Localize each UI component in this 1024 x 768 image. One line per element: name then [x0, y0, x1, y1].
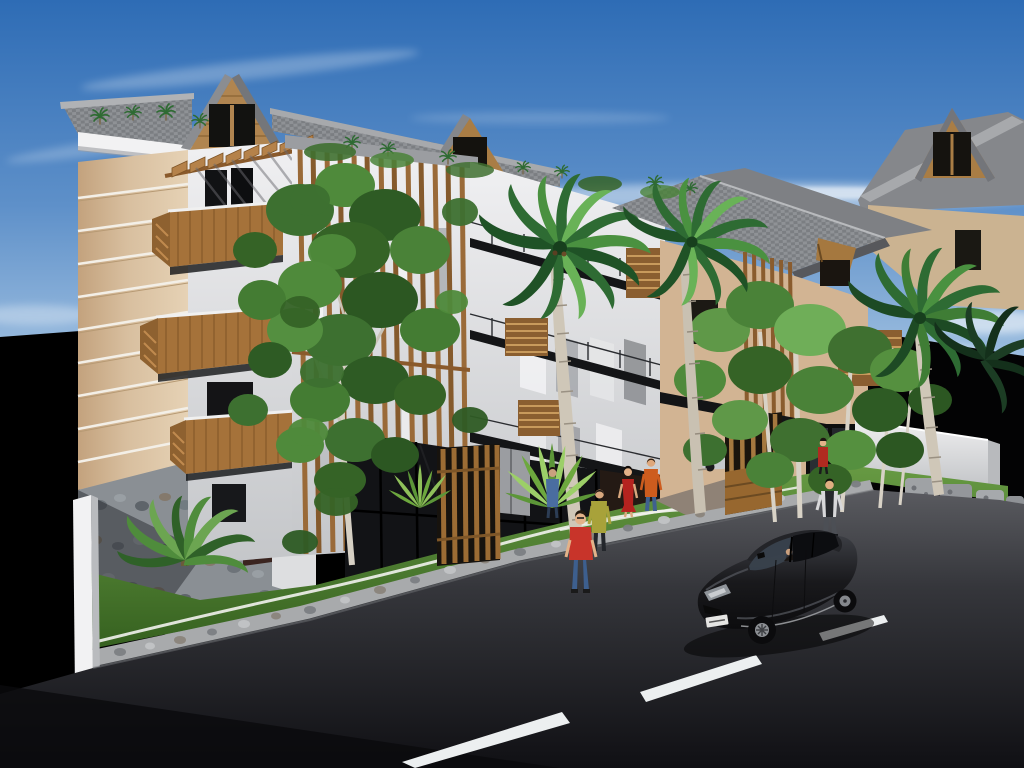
- wood-slat-gate: [437, 444, 500, 566]
- white-end-wall: [73, 495, 93, 692]
- architectural-rendering: [0, 0, 1024, 768]
